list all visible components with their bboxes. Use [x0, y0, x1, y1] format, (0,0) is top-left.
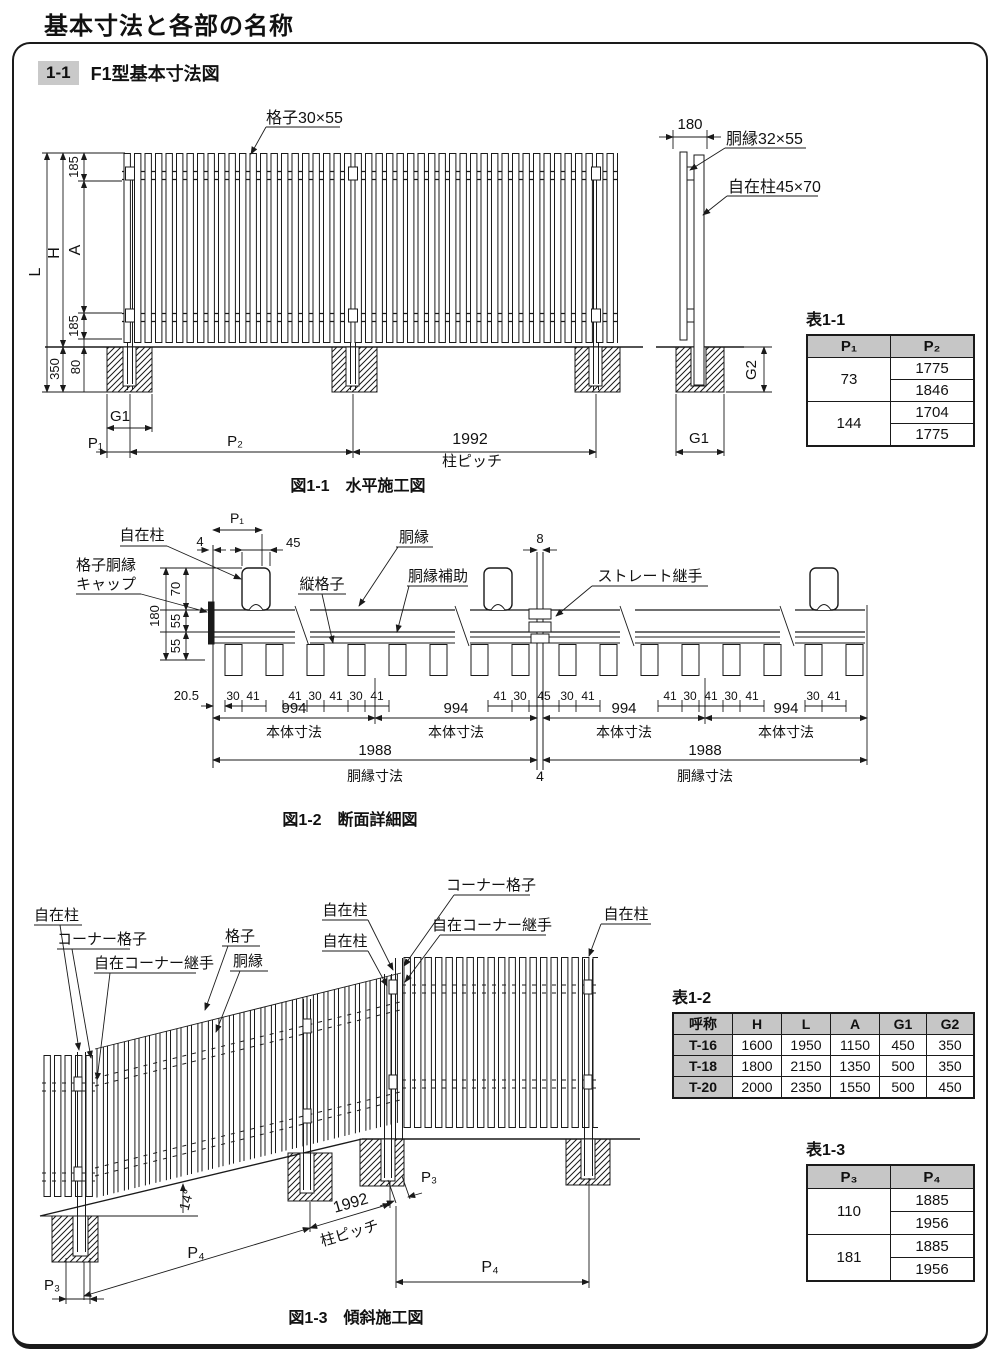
fig1-foundations — [107, 347, 620, 392]
table-1-1-header-p1: P₁ — [807, 335, 891, 358]
dim-30: 30 — [513, 689, 527, 703]
dim-4: 4 — [196, 534, 203, 549]
table-cell: 1704 — [891, 402, 975, 424]
label-corner-lattice: コーナー格子 — [446, 877, 536, 894]
dim-41: 41 — [581, 689, 595, 703]
dim-41: 41 — [370, 689, 384, 703]
dim-180: 180 — [677, 116, 702, 133]
table-cell: 1350 — [831, 1056, 880, 1077]
dim-30: 30 — [806, 689, 820, 703]
dim-45: 45 — [286, 535, 300, 550]
dim-185-top: 185 — [66, 156, 81, 178]
table-cell: 2350 — [782, 1077, 831, 1099]
table-cell: 1775 — [891, 424, 975, 447]
fig2-end-cap — [209, 602, 215, 644]
label-cap-line2: キャップ — [76, 576, 136, 593]
dim-994: 994 — [281, 700, 306, 717]
dim-350: 350 — [47, 358, 62, 380]
dim-A: A — [67, 244, 84, 255]
dim-180: 180 — [147, 605, 162, 627]
dim-L: L — [27, 267, 44, 276]
dim-41: 41 — [246, 689, 260, 703]
table-1-2-header: L — [782, 1013, 831, 1035]
label-body-dim: 本体寸法 — [758, 724, 814, 740]
fig2-caption: 図1-2 断面詳細図 — [240, 806, 460, 830]
dim-41: 41 — [827, 689, 841, 703]
dim-185-bottom: 185 — [66, 315, 81, 337]
table-1-3-block: 表1-3 P₃ P₄ 110 1885 1956 181 1885 1956 — [806, 1136, 975, 1282]
dim-4-joint: 4 — [536, 768, 544, 784]
dim-41: 41 — [663, 689, 677, 703]
fig3-slope-installation: 自在柱コーナー格子自在コーナー継手格子胴縁自在柱自在柱コーナー格子自在コーナー継… — [34, 877, 651, 1304]
label-rail-aux: 胴縁補助 — [408, 568, 468, 585]
table-row-header: T-18 — [673, 1056, 733, 1077]
label-body-dim: 本体寸法 — [428, 724, 484, 740]
dim-80: 80 — [68, 360, 83, 374]
label-lattice-size: 格子30×55 — [266, 109, 343, 127]
table-cell: 1846 — [891, 380, 975, 402]
dim-1992: 1992 — [331, 1191, 370, 1217]
dim-G1: G1 — [110, 408, 130, 425]
table-cell: 500 — [880, 1077, 927, 1099]
table-cell: 1885 — [891, 1235, 975, 1258]
label-corner-joint: 自在コーナー継手 — [432, 917, 552, 934]
dim-H: H — [46, 247, 63, 259]
dim-30: 30 — [560, 689, 574, 703]
table-cell: 1956 — [891, 1258, 975, 1282]
table-1-2: 呼称 H L A G1 G2 T-16 1600 1950 1150 450 3… — [672, 1012, 975, 1099]
fig3-fence-right — [402, 957, 598, 1129]
dim-P3-right: P₃ — [421, 1169, 437, 1186]
label-straight-joint: ストレート継手 — [597, 568, 702, 585]
table-1-1: P₁ P₂ 73 1775 1846 144 1704 1775 — [806, 334, 975, 447]
label-vertical-lattice: 縦格子 — [299, 576, 344, 593]
table-row-header: T-20 — [673, 1077, 733, 1099]
label-corner-lattice: コーナー格子 — [57, 931, 147, 948]
dim-P2: P₂ — [227, 433, 243, 450]
table-1-2-header: 呼称 — [673, 1013, 733, 1035]
label-rail-size: 胴縁32×55 — [726, 130, 803, 148]
dim-994: 994 — [443, 700, 468, 717]
dim-1988: 1988 — [358, 742, 391, 759]
table-cell: 450 — [880, 1035, 927, 1056]
table-1-3: P₃ P₄ 110 1885 1956 181 1885 1956 — [806, 1164, 975, 1282]
dim-30: 30 — [724, 689, 738, 703]
label-free-post: 自在柱 — [322, 933, 367, 950]
fig1-horizontal-installation: 格子30×55LHA18518580350G1P₁P₂1992柱ピッチ180胴縁… — [27, 109, 821, 470]
dim-41: 41 — [493, 689, 507, 703]
dim-P3-left: P₃ — [44, 1277, 60, 1294]
table-1-1-header-p2: P₂ — [891, 335, 975, 358]
label-rail-dim: 胴縁寸法 — [347, 768, 403, 784]
table-1-2-title: 表1-2 — [672, 984, 975, 1008]
dim-30: 30 — [349, 689, 363, 703]
dim-1988: 1988 — [688, 742, 721, 759]
table-cell: 144 — [807, 402, 891, 447]
label-lattice: 格子 — [225, 928, 255, 945]
table-1-2-header: A — [831, 1013, 880, 1035]
dim-8: 8 — [536, 531, 543, 546]
label-free-post: 自在柱 — [603, 906, 648, 923]
table-cell: 1775 — [891, 358, 975, 380]
table-cell: 1885 — [891, 1189, 975, 1212]
label-post-pitch: 柱ピッチ — [442, 453, 502, 470]
table-1-2-header: G1 — [880, 1013, 927, 1035]
fig3-caption: 図1-3 傾斜施工図 — [246, 1304, 466, 1328]
fig3-fence-slope — [95, 940, 401, 1230]
table-cell: 1600 — [733, 1035, 782, 1056]
table-1-1-title: 表1-1 — [806, 306, 975, 330]
dim-P1: P₁ — [88, 435, 103, 452]
table-cell: 110 — [807, 1189, 891, 1235]
table-cell: 350 — [927, 1035, 975, 1056]
label-body-dim: 本体寸法 — [266, 724, 322, 740]
table-cell: 73 — [807, 358, 891, 402]
fig3-fence-left — [42, 1055, 96, 1215]
label-free-post: 自在柱 — [34, 907, 79, 924]
table-cell: 2000 — [733, 1077, 782, 1099]
dim-1992: 1992 — [452, 431, 488, 448]
fig2-section-detail: 自在柱格子胴縁キャップP₁445縦格子胴縁胴縁補助8ストレート継手1807055… — [76, 510, 867, 784]
table-1-2-header: G2 — [927, 1013, 975, 1035]
table-cell: 181 — [807, 1235, 891, 1282]
dim-45: 45 — [537, 689, 551, 703]
label-rail-dim: 胴縁寸法 — [677, 768, 733, 784]
table-cell: 450 — [927, 1077, 975, 1099]
table-1-2-block: 表1-2 呼称 H L A G1 G2 T-16 1600 1950 1150 … — [672, 984, 975, 1099]
label-corner-joint: 自在コーナー継手 — [94, 955, 214, 972]
dim-G2: G2 — [743, 360, 760, 380]
dim-41: 41 — [745, 689, 759, 703]
dim-angle: 14° — [176, 1187, 197, 1212]
label-cap-line1: 格子胴縁 — [76, 557, 136, 574]
fig1-caption: 図1-1 水平施工図 — [248, 472, 468, 496]
table-1-3-title: 表1-3 — [806, 1136, 975, 1160]
dim-P1: P₁ — [230, 510, 244, 526]
dim-30: 30 — [226, 689, 240, 703]
table-1-3-header-p3: P₃ — [807, 1165, 891, 1189]
table-cell: 1950 — [782, 1035, 831, 1056]
dim-30: 30 — [683, 689, 697, 703]
dim-P4-right: P₄ — [481, 1259, 498, 1276]
dim-55b: 55 — [168, 639, 183, 653]
label-rail: 胴縁 — [233, 953, 263, 970]
fig2-slats-panel1 — [213, 644, 537, 676]
table-1-3-header-p4: P₄ — [891, 1165, 975, 1189]
label-free-post: 自在柱 — [322, 902, 367, 919]
dim-20-5: 20.5 — [174, 688, 199, 703]
table-cell: 500 — [880, 1056, 927, 1077]
dim-994: 994 — [611, 700, 636, 717]
dim-70: 70 — [168, 582, 183, 596]
dim-30: 30 — [308, 689, 322, 703]
label-rail: 胴縁 — [399, 529, 429, 546]
table-cell: 2150 — [782, 1056, 831, 1077]
table-1-1-block: 表1-1 P₁ P₂ 73 1775 1846 144 1704 1775 — [806, 306, 975, 447]
dim-55a: 55 — [168, 614, 183, 628]
label-free-post: 自在柱 — [119, 527, 164, 544]
dim-41: 41 — [329, 689, 343, 703]
fig1-fence-lattice — [122, 153, 618, 343]
label-free-post-size: 自在柱45×70 — [728, 178, 821, 196]
table-cell: 1956 — [891, 1212, 975, 1235]
table-row-header: T-16 — [673, 1035, 733, 1056]
fig2-slats-panel2 — [543, 644, 867, 676]
label-body-dim: 本体寸法 — [596, 724, 652, 740]
dim-G1-side: G1 — [689, 430, 709, 447]
table-cell: 1150 — [831, 1035, 880, 1056]
table-cell: 1800 — [733, 1056, 782, 1077]
page: 基本寸法と各部の名称 1-1 F1型基本寸法図 — [0, 0, 1000, 1357]
dim-994: 994 — [773, 700, 798, 717]
table-cell: 1550 — [831, 1077, 880, 1099]
dim-P4-slope: P₄ — [187, 1245, 204, 1262]
table-cell: 350 — [927, 1056, 975, 1077]
table-1-2-header: H — [733, 1013, 782, 1035]
dim-41: 41 — [704, 689, 718, 703]
